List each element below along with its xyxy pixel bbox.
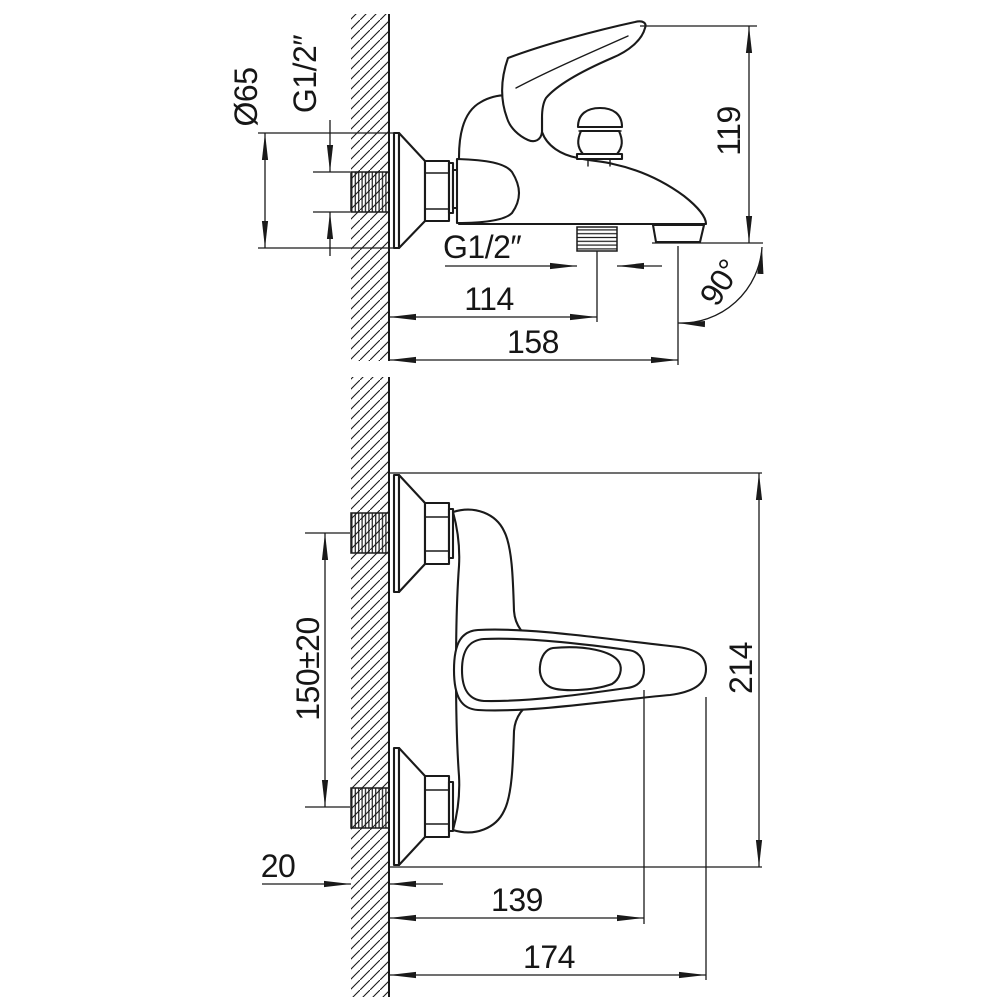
dim-label-outlet-thread: G1/2″ bbox=[443, 229, 521, 265]
faucet-installation-drawing: Ø65 G1/2″ 119 G1/2″ 114 bbox=[0, 0, 1000, 1000]
dim-label-outlet-angle: 90° bbox=[692, 253, 747, 312]
dimension-outlet-angle: 90° bbox=[652, 243, 763, 323]
lever-handle-side bbox=[502, 21, 645, 141]
escutcheon-cone bbox=[399, 133, 425, 248]
hex-nut bbox=[425, 776, 449, 837]
diverter-knob bbox=[577, 108, 622, 166]
escutcheon-side bbox=[394, 133, 425, 248]
spout-outlet bbox=[653, 225, 704, 242]
knob-flange bbox=[577, 154, 622, 159]
washer bbox=[449, 509, 453, 558]
escutcheon-cone bbox=[399, 475, 425, 592]
dim-label-body-reach: 139 bbox=[491, 882, 543, 918]
dim-label-escutcheon-diameter: Ø65 bbox=[228, 68, 264, 127]
extension-lines bbox=[313, 172, 350, 212]
dim-label-overall-span: 214 bbox=[723, 642, 759, 694]
knob-waist bbox=[578, 131, 622, 154]
escutcheon-cone bbox=[399, 748, 425, 865]
dim-label-height: 119 bbox=[711, 106, 747, 156]
plan-view: 150±20 214 20 139 174 bbox=[261, 377, 762, 997]
knob-cap bbox=[578, 108, 622, 127]
wall-section-plan bbox=[351, 377, 389, 997]
connector-side bbox=[425, 161, 458, 221]
washer bbox=[449, 782, 453, 831]
dim-label-wall-thickness: 20 bbox=[261, 848, 296, 884]
dimension-outlet-thread: G1/2″ bbox=[443, 229, 662, 266]
escutcheon-bottom bbox=[394, 748, 453, 865]
hex-nut bbox=[425, 503, 449, 564]
side-view: Ø65 G1/2″ 119 G1/2″ 114 bbox=[228, 14, 763, 365]
body-end-cap bbox=[457, 159, 519, 223]
dimension-spout-reach: 158 bbox=[389, 246, 678, 365]
dim-label-spout-reach: 158 bbox=[507, 324, 559, 360]
dimension-body-reach: 139 bbox=[389, 882, 644, 918]
inlet-thread bbox=[351, 172, 389, 212]
dim-label-handle-reach: 174 bbox=[523, 939, 575, 975]
dimension-pipe-spacing: 150±20 bbox=[290, 533, 350, 807]
dim-label-outlet-offset: 114 bbox=[464, 281, 514, 317]
supply-thread-bottom bbox=[351, 788, 389, 828]
supply-thread-top bbox=[351, 513, 389, 553]
dim-label-inlet-thread: G1/2″ bbox=[287, 35, 323, 113]
dimension-handle-reach: 174 bbox=[389, 939, 706, 975]
hex-nut bbox=[425, 161, 449, 221]
dimension-inlet-thread: G1/2″ bbox=[287, 35, 350, 256]
shower-outlet-thread bbox=[577, 227, 617, 251]
lever-handle-outline bbox=[502, 21, 645, 141]
dim-label-pipe-spacing: 150±20 bbox=[290, 617, 326, 721]
lever-ridge-oval bbox=[540, 647, 621, 690]
escutcheon-top bbox=[394, 475, 453, 592]
wall-hatch bbox=[351, 377, 389, 997]
